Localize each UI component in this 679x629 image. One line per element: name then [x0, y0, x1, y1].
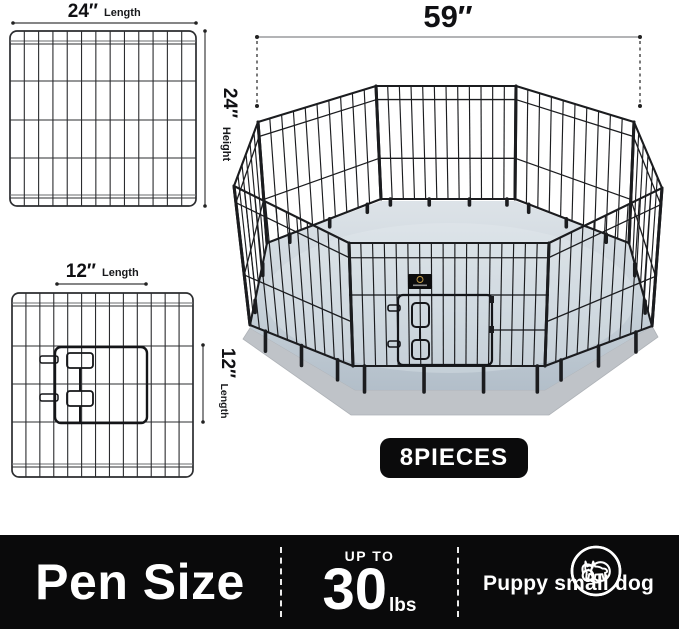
pieces-badge: 8PIECES	[380, 438, 528, 478]
pen-size-title: Pen Size	[0, 535, 280, 629]
brand-plate	[408, 274, 432, 289]
pieces-label: 8PIECES	[400, 444, 508, 472]
product-infographic: 24″ Length 24″ Height 12″ Length	[0, 0, 679, 629]
playpen-illustration: 59″	[0, 0, 679, 500]
pets-section: Puppy small dog	[458, 535, 679, 629]
info-bar: Pen Size UP TO 30 lbs	[0, 535, 679, 629]
pen-width-label: 59″	[423, 0, 472, 34]
weight-value: 30	[323, 565, 388, 614]
small-dog-icon	[569, 544, 623, 598]
weight-unit: lbs	[389, 597, 416, 614]
weight-section: UP TO 30 lbs	[282, 535, 457, 629]
pen-width-dimension: 59″	[255, 0, 642, 108]
